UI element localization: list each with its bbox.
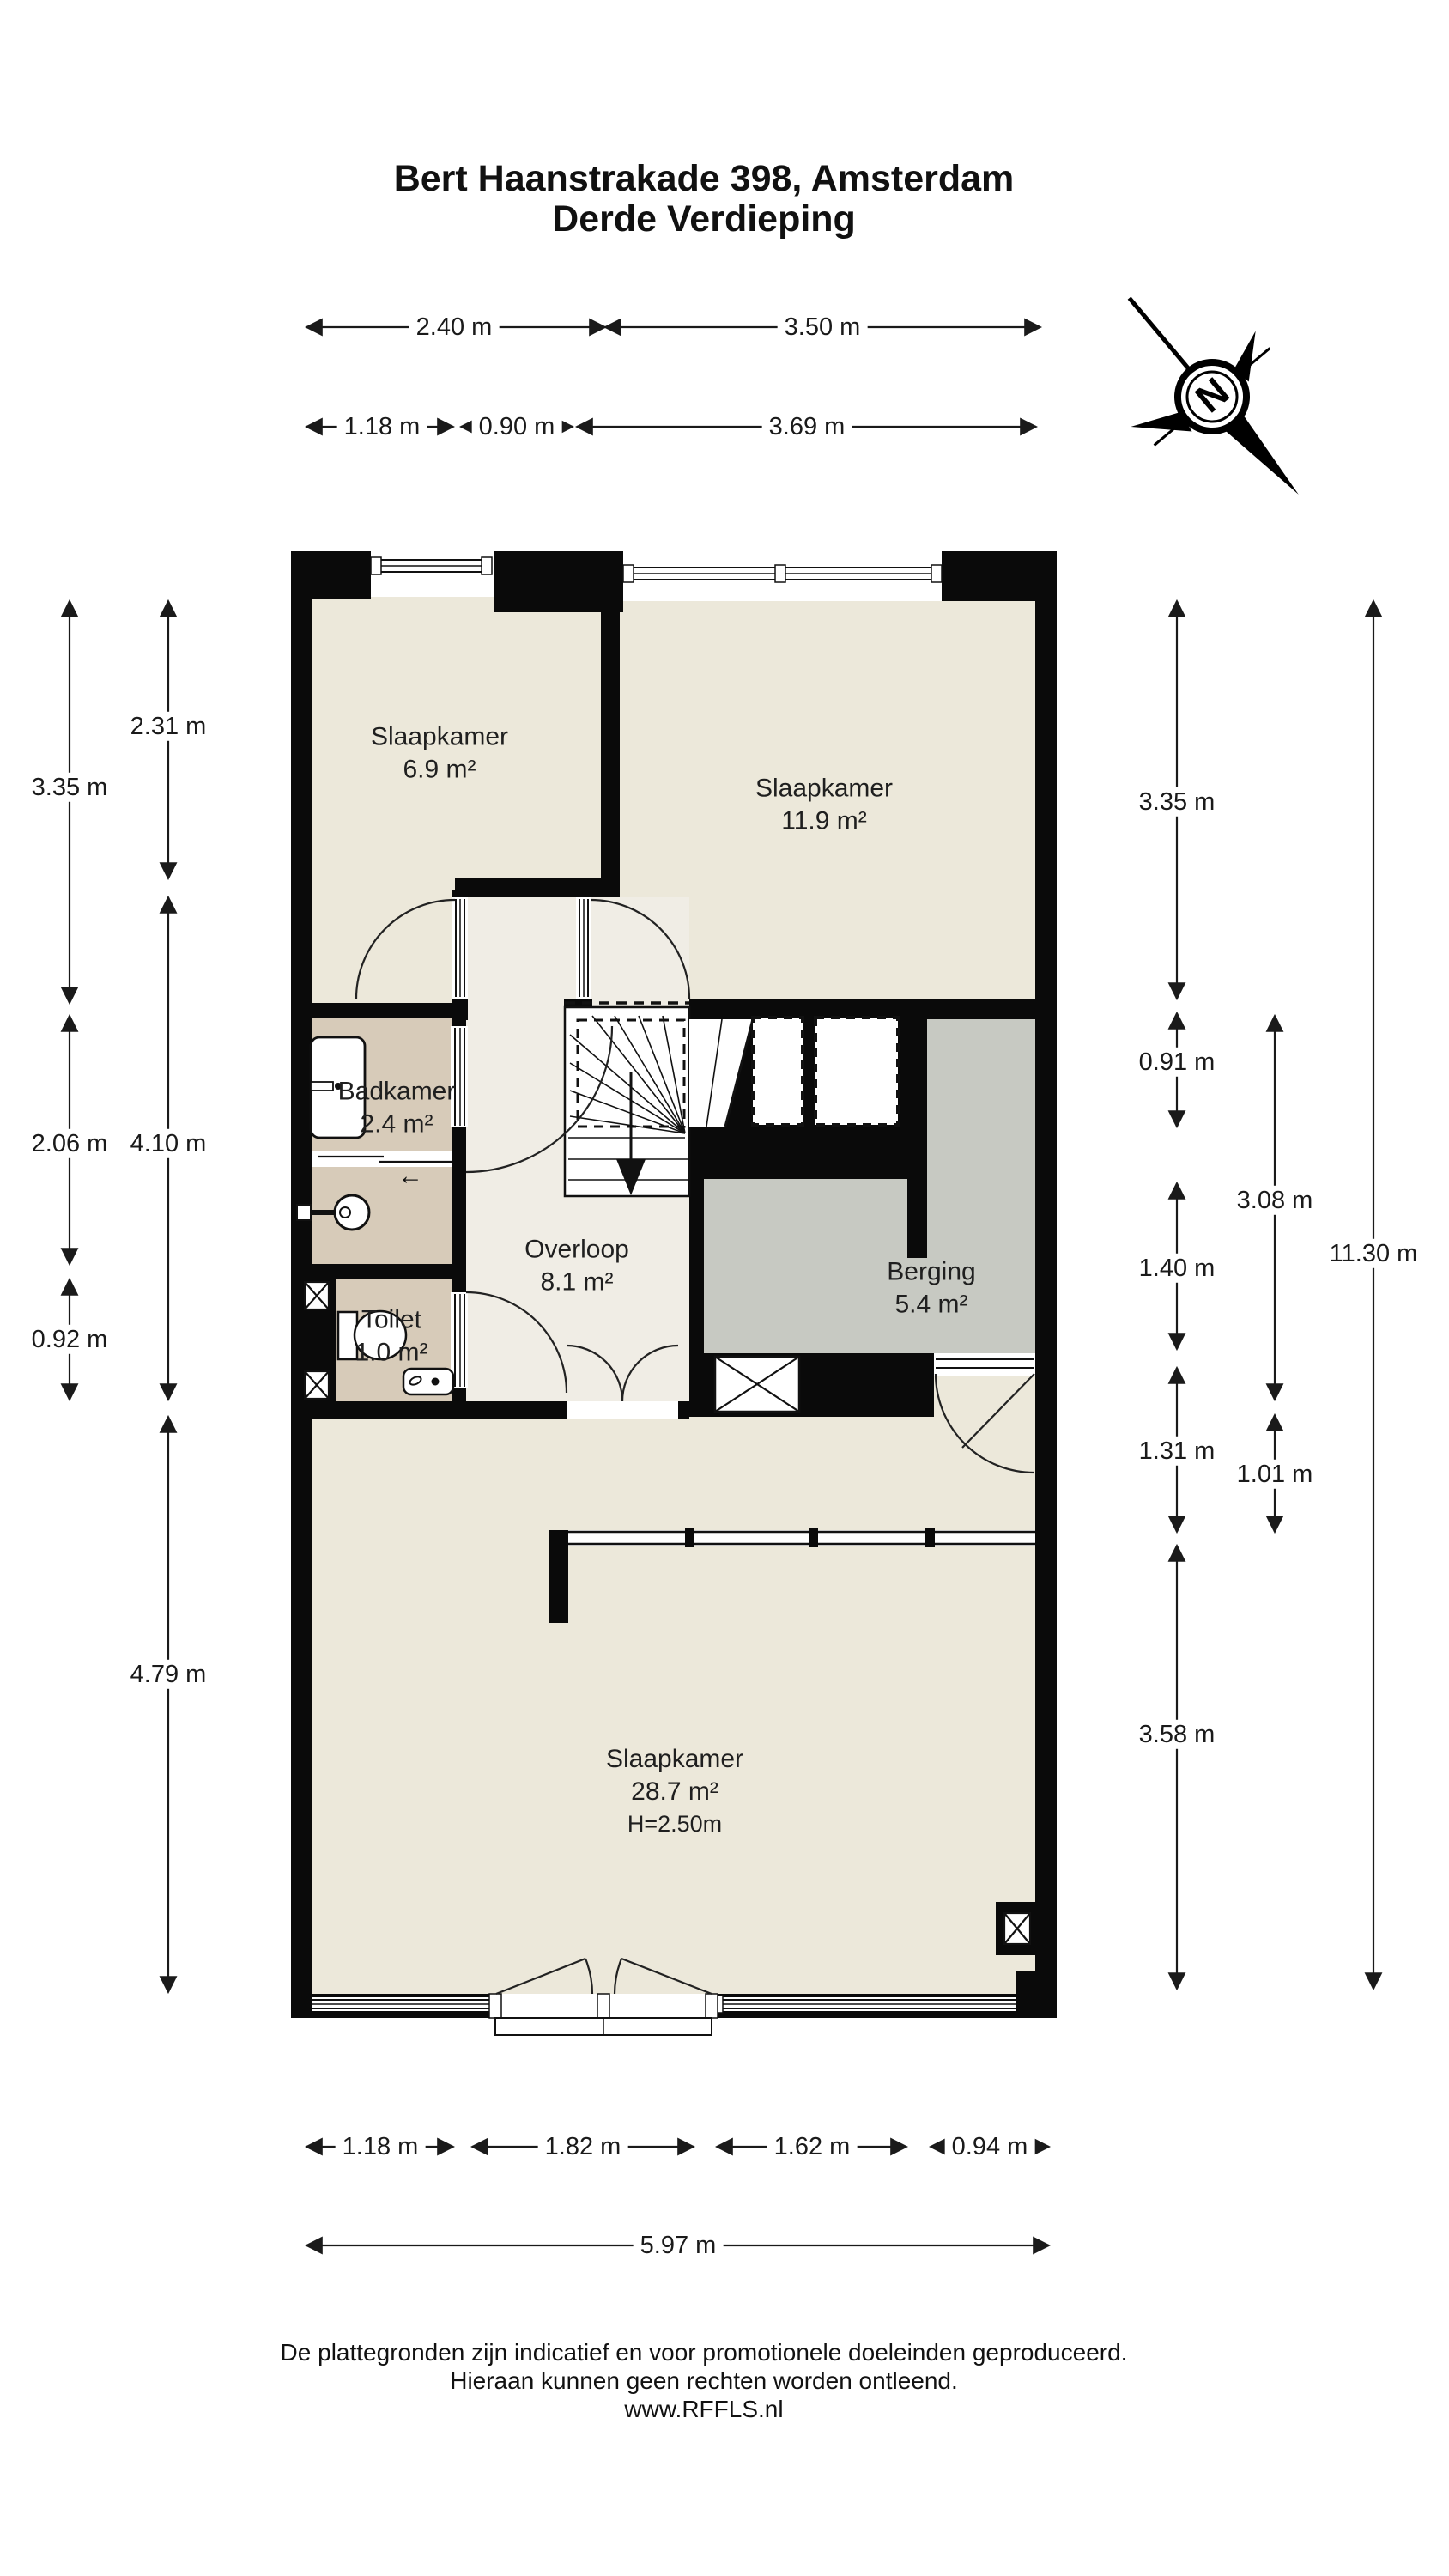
dashed-opening-small [753,1018,803,1125]
door-threshold-slaapkamer1 [452,897,468,999]
footer-disclaimer-1: De plattegronden zijn indicatief en voor… [0,2339,1408,2366]
room-label-slaapkamer-6-9: Slaapkamer 6.9 m² [371,721,508,786]
dim-5-97m: 5.97 m [634,2231,724,2260]
dim-11-30m: 11.30 m [1323,1239,1425,1268]
wall-berging-north [927,999,1035,1019]
page-title: Bert Haanstrakade 398, Amsterdam [0,158,1408,200]
window-bottom-right [712,1996,1016,2013]
wall-pier-bottom-right [1016,1971,1057,2018]
dim-3-08m: 3.08 m [1230,1186,1320,1215]
dim-3-35m-left: 3.35 m [25,773,115,802]
room-label-berging: Berging 5.4 m² [887,1256,975,1321]
page-subtitle: Derde Verdieping [0,198,1408,240]
door-threshold-berging [934,1353,1035,1376]
sliding-partition [312,1151,452,1167]
floor-slaapkamer-28-7 [312,1417,1035,1994]
window-top-right [623,551,942,601]
dim-0-90m: 0.90 m [472,412,562,441]
wall-bedroom-divider [601,551,620,897]
wall-pier-top-right [942,551,1057,601]
door-threshold-overloop [567,1401,678,1419]
dim-3-58m: 3.58 m [1132,1720,1222,1749]
shaft-central [715,1357,799,1412]
dim-1-31m: 1.31 m [1132,1437,1222,1466]
room-label-slaapkamer-28-7: Slaapkamer 28.7 m² H=2.50m [606,1743,743,1840]
dim-3-35m-right: 3.35 m [1132,787,1222,817]
window-top-left [371,551,494,594]
sliding-door-arrow-icon: ← [397,1162,423,1191]
room-label-toilet: Toilet 1.0 m² [355,1304,427,1369]
wall-berging-notch [907,1179,927,1258]
dim-4-10m: 4.10 m [124,1129,214,1158]
dim-2-06m: 2.06 m [25,1129,115,1158]
hand-basin [403,1369,453,1394]
door-threshold-slaapkamer2 [576,897,591,999]
room-label-overloop: Overloop 8.1 m² [524,1234,629,1298]
room-label-slaapkamer-11-9: Slaapkamer 11.9 m² [755,773,893,837]
shaft-toilet-bottom [305,1371,329,1399]
dim-0-91m: 0.91 m [1132,1048,1222,1077]
wall-jamb [576,890,591,897]
dim-1-18m-top: 1.18 m [337,412,427,441]
dim-1-82m: 1.82 m [538,2132,628,2161]
dim-3-50m: 3.50 m [778,313,868,342]
floor-slaapkamer-28-7-strip [934,1374,1035,1417]
footer-website: www.RFFLS.nl [0,2396,1408,2423]
wall-badkamer-north [291,1003,468,1018]
floorplan-page: Bert Haanstrakade 398, Amsterdam Derde V… [0,0,1449,2576]
window-bottom-left [312,1997,489,2011]
wall-badkamer-toilet [291,1264,466,1279]
wall-bedroom3-north-left [291,1401,567,1419]
dim-2-40m: 2.40 m [409,313,500,342]
footer-disclaimer-2: Hieraan kunnen geen rechten worden ontle… [0,2367,1408,2395]
wall-slaapkamer1-south [455,878,620,897]
dim-0-92m: 0.92 m [25,1325,115,1354]
french-door-threshold [489,1994,718,2035]
dashed-opening-large [815,1018,898,1125]
room-label-badkamer: Badkamer 2.4 m² [338,1076,456,1140]
wall-pier-top-left [291,551,371,599]
shaft-bedroom-right [1004,1913,1030,1944]
dim-1-62m: 1.62 m [767,2132,858,2161]
wall-right [1035,551,1057,2018]
dim-3-69m: 3.69 m [762,412,852,441]
dim-1-40m: 1.40 m [1132,1254,1222,1283]
dim-2-31m: 2.31 m [124,712,214,741]
floorplan-drawing [0,0,1449,2576]
dim-0-94m: 0.94 m [945,2132,1035,2161]
shaft-toilet-top [305,1282,329,1309]
wall-partition-stub [549,1530,568,1623]
glass-partition [568,1528,1035,1547]
dim-1-01m: 1.01 m [1230,1460,1320,1489]
wall-jamb [452,890,468,897]
dim-4-79m: 4.79 m [124,1660,214,1689]
wall-bedroom3-north-mid [678,1401,689,1419]
dim-1-18m-bottom: 1.18 m [336,2132,426,2161]
wall-overloop-berging [689,1179,704,1401]
